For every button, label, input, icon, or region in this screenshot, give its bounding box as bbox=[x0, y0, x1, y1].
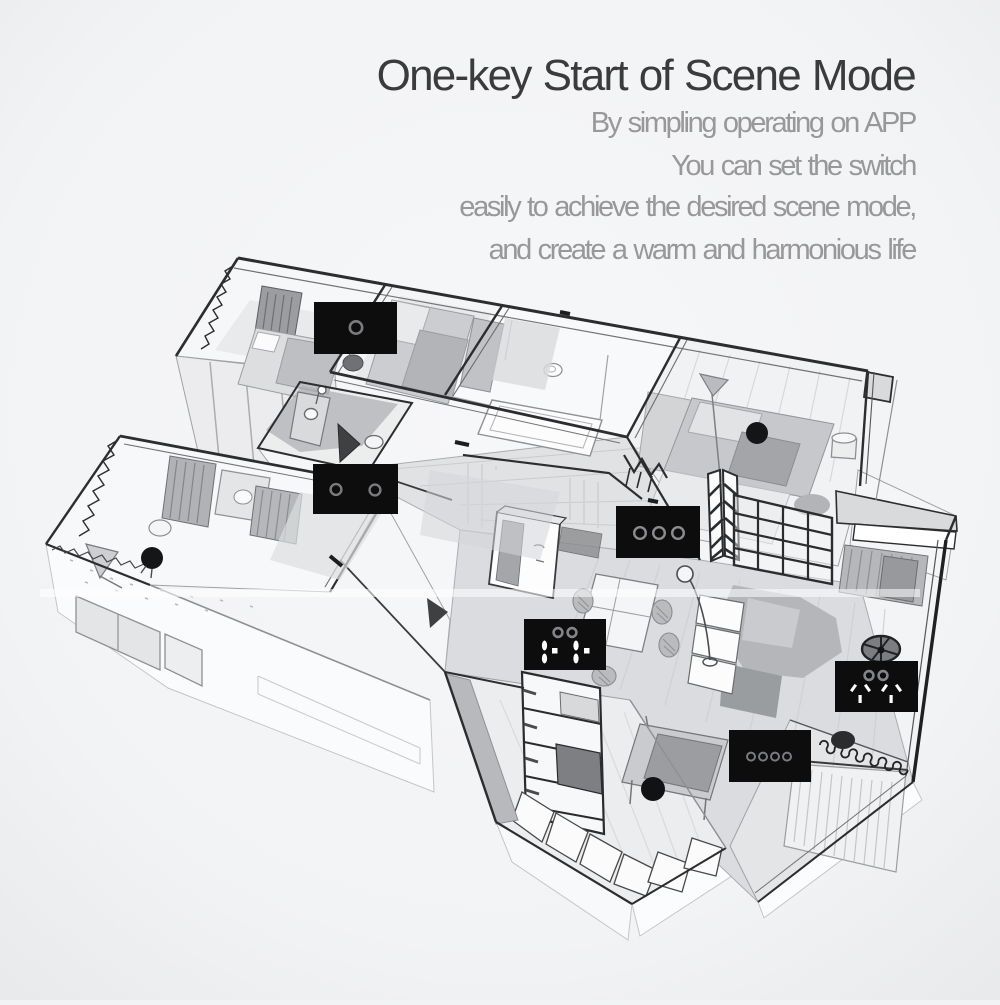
svg-text:easily to achieve the desired: easily to achieve the desired scene mode… bbox=[459, 191, 915, 223]
svg-text:You can set the switch: You can set the switch bbox=[671, 150, 916, 182]
svg-text:One-key Start of Scene Mode: One-key Start of Scene Mode bbox=[377, 51, 916, 100]
svg-text:By simpling operating on APP: By simpling operating on APP bbox=[591, 107, 916, 139]
svg-text:and create a warm and harmonio: and create a warm and harmonious life bbox=[489, 234, 917, 266]
